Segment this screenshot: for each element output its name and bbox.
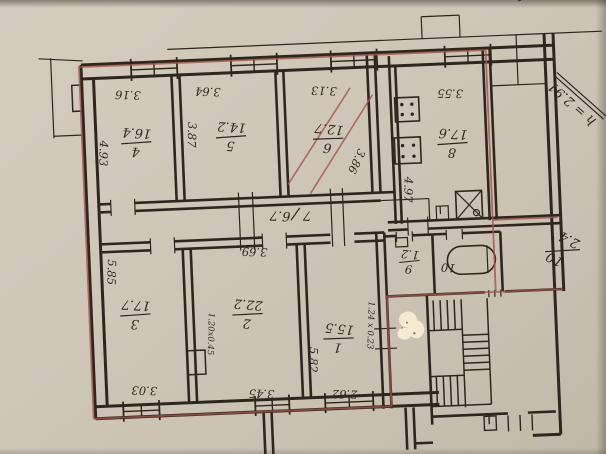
dim-room1-side: 5.82: [306, 347, 321, 373]
room-3-number: 3: [130, 316, 139, 331]
room-1-area: 15.5: [324, 319, 354, 337]
room-4-area: 16.4: [122, 124, 152, 141]
note-room1: 1.24 x 0.23: [364, 301, 375, 349]
ceiling-height-note: h = 2.91: [543, 72, 606, 132]
dim-room1-bottom: 2.62: [332, 387, 359, 402]
room-1-number: 1: [333, 339, 343, 355]
room-9-area: 1.2: [400, 247, 420, 263]
red-boundary-line: [79, 47, 567, 419]
room-9-number: 9: [404, 262, 413, 277]
room-2-number: 2: [242, 315, 252, 331]
room-4-number: 4: [131, 144, 141, 160]
building-context-lines: [38, 9, 606, 139]
paper-speck: [518, 0, 521, 1]
dim-room6-top: 3.13: [311, 84, 337, 99]
dim-room8-top: 3.55: [437, 86, 463, 100]
dim-room6-side: 3.86: [345, 147, 369, 176]
margin-annotations: h = 2.91 10 2.4: [533, 70, 606, 275]
room-8-number: 8: [447, 144, 456, 159]
dim-room2-top: 3.69: [242, 245, 268, 260]
room-3-area: 17.7: [120, 296, 151, 313]
room-5-number: 5: [226, 138, 235, 153]
dim-room4-top: 3.16: [115, 88, 141, 103]
room-4-label: 4 16.4: [120, 124, 152, 160]
dim-room5-side: 3.87: [185, 122, 200, 149]
room-10-number: 10: [441, 260, 456, 275]
dim-room5-top: 3.64: [195, 84, 221, 99]
room-2-label: 2 22.2: [231, 295, 264, 331]
room-5-area: 14.2: [217, 118, 247, 135]
room-6-label: 6 12.7: [312, 119, 345, 156]
room-6-area: 12.7: [313, 119, 344, 137]
room-7-label: 7 6.7: [269, 205, 312, 225]
note-room2-niche: 1.20x0.45: [205, 313, 216, 356]
tilted-plan: 4 16.4 5 14.2 6 12.7 8 17.6 7: [37, 0, 606, 454]
sink-icon: [456, 190, 483, 219]
room-1-label: 1 15.5: [322, 319, 355, 356]
dim-room3-side: 5.85: [104, 259, 119, 285]
room-3-label: 3 17.7: [119, 296, 151, 332]
dim-room8-side: 4.97: [401, 176, 416, 204]
dim-room2-bottom: 3.45: [249, 386, 275, 401]
staircase: [427, 298, 491, 408]
room-5-label: 5 14.2: [215, 118, 247, 154]
dim-room4-side: 4.93: [96, 139, 111, 166]
boiler-icon: [436, 206, 449, 220]
room-2-area: 22.2: [233, 295, 264, 312]
interior-walls: [93, 45, 570, 454]
room-8-area: 17.6: [438, 125, 468, 142]
room-9-label: 9 1.2: [398, 247, 421, 278]
whiteout-mark: [397, 311, 425, 340]
scanned-floor-plan-photo: 4 16.4 5 14.2 6 12.7 8 17.6 7: [0, 0, 606, 454]
floor-plan-drawing: 4 16.4 5 14.2 6 12.7 8 17.6 7: [0, 0, 606, 454]
room-7-area: 6.7: [269, 207, 291, 223]
room-8-label: 8 17.6: [437, 125, 469, 161]
room-7-number: 7: [302, 207, 312, 223]
dim-room3-bottom: 3.03: [131, 383, 157, 398]
room-6-number: 6: [323, 139, 333, 155]
entrance-detail: [484, 414, 533, 432]
toilet-icon: [395, 238, 407, 247]
